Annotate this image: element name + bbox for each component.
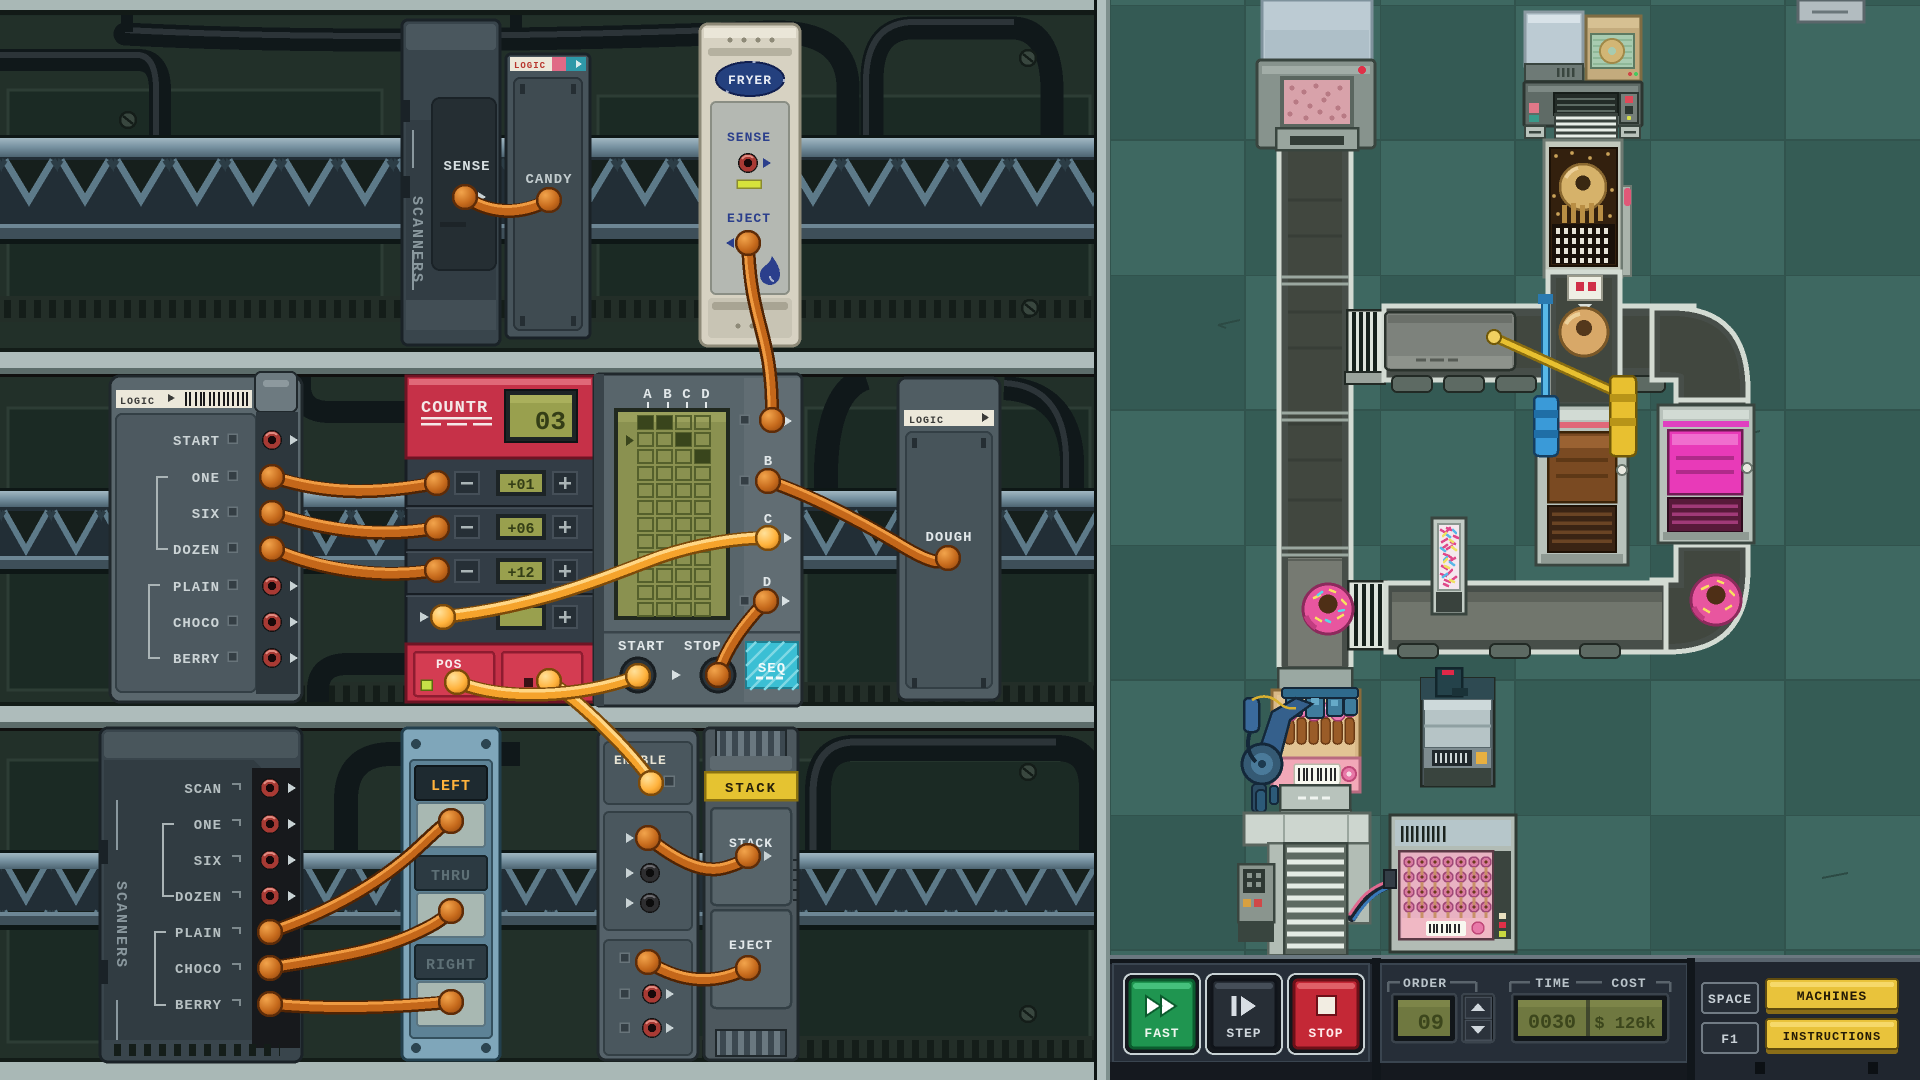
svg-text:B: B xyxy=(764,454,773,470)
svg-text:03: 03 xyxy=(535,407,566,437)
svg-text:START: START xyxy=(173,434,220,450)
svg-text:LOGIC: LOGIC xyxy=(909,416,944,427)
svg-text:+12: +12 xyxy=(507,565,534,582)
svg-text:SEQ: SEQ xyxy=(758,661,786,677)
svg-text:STOP: STOP xyxy=(684,639,722,655)
svg-text:09: 09 xyxy=(1418,1011,1444,1036)
svg-text:PLAIN: PLAIN xyxy=(173,580,220,596)
svg-text:LOGIC: LOGIC xyxy=(120,397,155,408)
svg-text:THRU: THRU xyxy=(431,868,471,885)
svg-text:EJECT: EJECT xyxy=(727,211,771,226)
svg-text:F1: F1 xyxy=(1721,1032,1739,1047)
svg-text:CHOCO: CHOCO xyxy=(175,962,222,978)
svg-text:LEFT: LEFT xyxy=(431,778,471,795)
svg-text:ONE: ONE xyxy=(194,818,222,834)
svg-text:STACK: STACK xyxy=(725,781,777,797)
svg-text:A: A xyxy=(643,387,652,403)
svg-text:COST: COST xyxy=(1611,976,1646,991)
svg-text:$ 126k: $ 126k xyxy=(1594,1015,1655,1034)
svg-text:SENSE: SENSE xyxy=(727,130,771,145)
svg-text:ORDER: ORDER xyxy=(1403,976,1447,991)
svg-text:PLAIN: PLAIN xyxy=(175,926,222,942)
svg-text:CHOCO: CHOCO xyxy=(173,616,220,632)
svg-text:BERRY: BERRY xyxy=(175,998,222,1014)
svg-text:COUNTR: COUNTR xyxy=(421,399,488,418)
svg-text:DOZEN: DOZEN xyxy=(173,543,220,559)
svg-text:DOUGH: DOUGH xyxy=(925,530,972,546)
svg-text:SIX: SIX xyxy=(194,854,222,870)
svg-text:LOGIC: LOGIC xyxy=(514,61,546,71)
svg-text:BERRY: BERRY xyxy=(173,652,220,668)
svg-text:SCAN: SCAN xyxy=(184,782,222,798)
svg-text:+06: +06 xyxy=(507,521,534,538)
svg-text:B: B xyxy=(663,387,672,403)
svg-text:INSTRUCTIONS: INSTRUCTIONS xyxy=(1783,1030,1881,1044)
svg-text:+01: +01 xyxy=(507,477,534,494)
svg-text:TIME: TIME xyxy=(1535,976,1570,991)
svg-text:SPACE: SPACE xyxy=(1708,992,1752,1007)
svg-text:MACHINES: MACHINES xyxy=(1797,989,1867,1004)
svg-text:CANDY: CANDY xyxy=(525,172,572,188)
svg-text:C: C xyxy=(682,387,691,403)
svg-text:SCANNERS: SCANNERS xyxy=(408,196,425,284)
svg-text:D: D xyxy=(701,387,710,403)
svg-text:EJECT: EJECT xyxy=(729,938,773,953)
svg-text:DOZEN: DOZEN xyxy=(175,890,222,906)
svg-text:FRYER: FRYER xyxy=(728,73,772,88)
svg-text:SIX: SIX xyxy=(192,507,220,523)
svg-text:FAST: FAST xyxy=(1144,1026,1179,1041)
svg-text:STEP: STEP xyxy=(1226,1026,1261,1041)
svg-text:0030: 0030 xyxy=(1528,1012,1576,1035)
svg-text:ONE: ONE xyxy=(192,471,220,487)
svg-text:START: START xyxy=(618,639,665,655)
svg-text:SENSE: SENSE xyxy=(443,159,490,175)
svg-text:STOP: STOP xyxy=(1308,1026,1343,1041)
svg-text:SCANNERS: SCANNERS xyxy=(112,881,129,969)
svg-text:RIGHT: RIGHT xyxy=(426,957,476,974)
